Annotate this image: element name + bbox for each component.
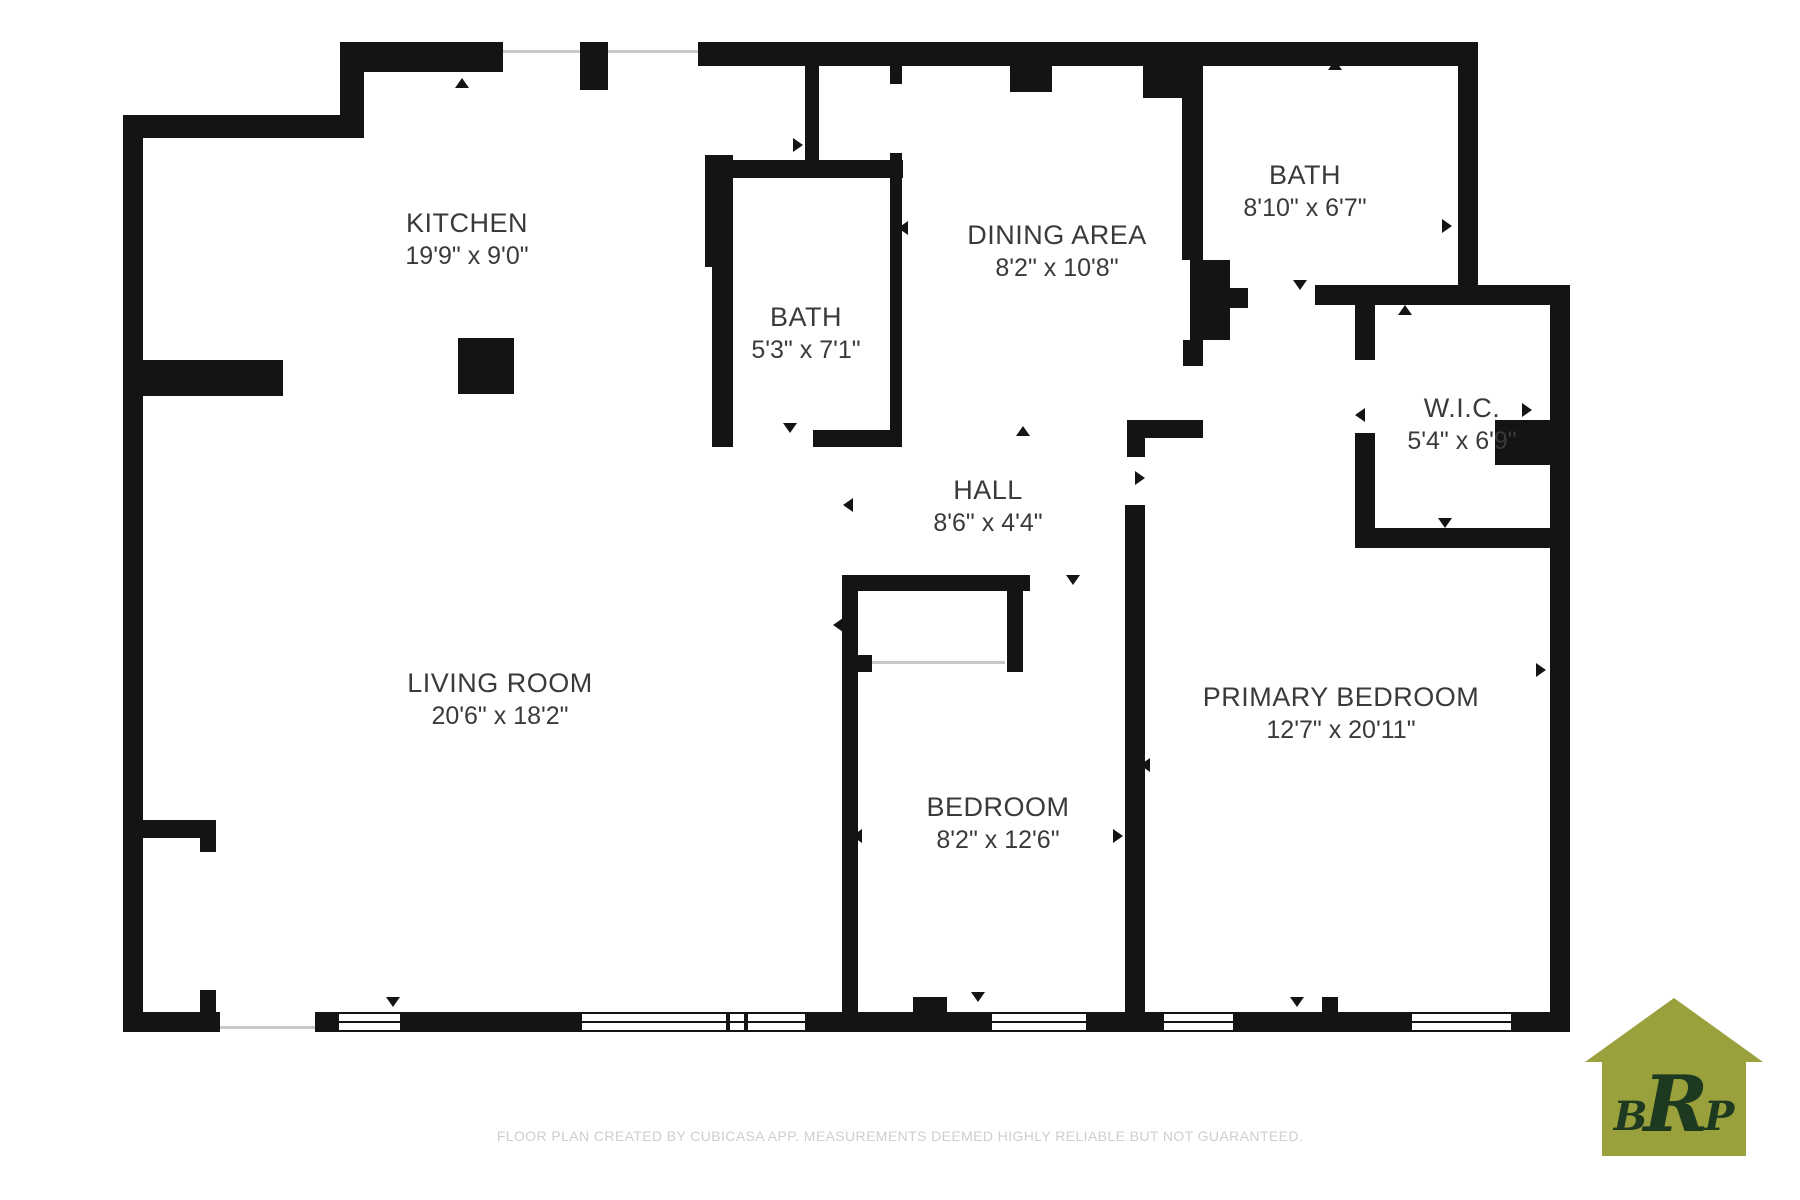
room-dimensions: 8'2" x 12'6" — [926, 824, 1069, 857]
room-dimensions: 8'10" x 6'7" — [1243, 192, 1366, 225]
opening-line — [608, 50, 698, 53]
logo-letter-r: R — [1643, 1059, 1708, 1150]
wall-segment — [807, 1012, 990, 1032]
closet-wall — [858, 655, 872, 672]
door-marker — [843, 498, 853, 512]
door-marker — [1293, 280, 1307, 290]
room-name: BATH — [751, 301, 860, 334]
room-dimensions: 5'3" x 7'1" — [751, 334, 860, 367]
wall-segment — [698, 42, 1478, 66]
closet-wall — [1007, 591, 1023, 672]
door-marker — [1066, 575, 1080, 585]
door-marker — [1398, 305, 1412, 315]
room-label-hall: HALL 8'6" x 4'4" — [933, 474, 1042, 540]
closet-door-line — [862, 661, 1005, 664]
room-label-bath-small: BATH 5'3" x 7'1" — [751, 301, 860, 367]
wall-segment — [1315, 285, 1458, 305]
room-dimensions: 19'9" x 9'0" — [405, 240, 528, 273]
wall-segment — [580, 42, 608, 90]
door-marker — [1355, 408, 1365, 422]
floor-plan: KITCHEN 19'9" x 9'0" BATH 5'3" x 7'1" DI… — [0, 0, 1800, 1200]
wall-segment — [1088, 1012, 1162, 1032]
room-dimensions: 5'4" x 6'9" — [1407, 425, 1516, 458]
house-roof-icon — [1585, 998, 1763, 1062]
room-dimensions: 20'6" x 18'2" — [407, 700, 593, 733]
door-marker — [852, 829, 862, 843]
door-marker — [783, 423, 797, 433]
wall-segment — [842, 575, 1030, 591]
wall-segment — [890, 66, 902, 84]
door-marker — [1290, 997, 1304, 1007]
opening-line — [503, 50, 580, 53]
room-name: HALL — [933, 474, 1042, 507]
door-marker — [386, 997, 400, 1007]
door-marker — [971, 992, 985, 1002]
room-name: KITCHEN — [405, 207, 528, 240]
door-marker — [898, 221, 908, 235]
wall-segment — [200, 820, 216, 852]
kitchen-counter-wall — [123, 360, 283, 396]
room-label-primary-bedroom: PRIMARY BEDROOM 12'7" x 20'11" — [1203, 681, 1480, 747]
door-marker — [1522, 403, 1532, 417]
wall-segment — [340, 42, 503, 72]
room-name: BEDROOM — [926, 791, 1069, 824]
room-name: DINING AREA — [967, 219, 1147, 252]
wall-segment — [1458, 42, 1478, 305]
door-marker — [833, 618, 843, 632]
room-label-kitchen: KITCHEN 19'9" x 9'0" — [405, 207, 528, 273]
wall-segment — [123, 115, 143, 1032]
wall-segment — [712, 267, 733, 447]
wall-segment — [1322, 997, 1338, 1012]
room-label-bedroom: BEDROOM 8'2" x 12'6" — [926, 791, 1069, 857]
room-dimensions: 12'7" x 20'11" — [1203, 714, 1480, 747]
window — [746, 1012, 807, 1032]
wall-segment — [1182, 42, 1203, 260]
door-marker — [793, 138, 803, 152]
brp-logo: B R P — [1585, 998, 1763, 1158]
wall-segment — [1355, 305, 1375, 360]
wall-segment — [813, 430, 902, 447]
wall-segment — [1513, 1012, 1570, 1032]
door-marker — [1016, 426, 1030, 436]
door-marker — [455, 78, 469, 88]
door-marker — [1140, 758, 1150, 772]
wall-segment — [1127, 420, 1145, 457]
opening-line — [220, 1026, 315, 1029]
wall-segment — [123, 115, 364, 138]
wall-segment — [1230, 288, 1248, 308]
room-label-wic: W.I.C. 5'4" x 6'9" — [1407, 392, 1516, 458]
wall-segment — [913, 997, 947, 1012]
window — [990, 1012, 1088, 1032]
door-marker — [128, 140, 138, 154]
wall-segment — [1183, 340, 1203, 366]
door-marker — [1010, 62, 1024, 72]
door-marker — [1442, 219, 1452, 233]
wall-segment — [842, 575, 858, 1012]
room-dimensions: 8'6" x 4'4" — [933, 507, 1042, 540]
door-marker — [1135, 471, 1145, 485]
window-joint — [728, 1012, 746, 1032]
room-name: PRIMARY BEDROOM — [1203, 681, 1480, 714]
door-marker — [128, 538, 138, 552]
window — [337, 1012, 402, 1032]
wall-segment — [315, 1012, 337, 1032]
brp-logo-text: B R P — [1585, 1056, 1763, 1156]
room-name: W.I.C. — [1407, 392, 1516, 425]
door-marker — [1113, 829, 1123, 843]
window — [580, 1012, 728, 1032]
kitchen-island — [458, 338, 514, 394]
door-marker — [1438, 518, 1452, 528]
wall-segment — [402, 1012, 580, 1032]
wall-segment — [1355, 528, 1550, 548]
window — [1410, 1012, 1513, 1032]
room-label-bath-large: BATH 8'10" x 6'7" — [1243, 159, 1366, 225]
wall-segment — [1235, 1012, 1410, 1032]
window — [1162, 1012, 1235, 1032]
room-name: LIVING ROOM — [407, 667, 593, 700]
wall-segment — [1143, 42, 1183, 98]
wall-segment — [1190, 260, 1230, 340]
wall-segment — [890, 153, 902, 447]
door-marker — [1536, 663, 1546, 677]
room-name: BATH — [1243, 159, 1366, 192]
wall-segment — [1550, 285, 1570, 1032]
wall-segment — [705, 155, 733, 267]
disclaimer-text: FLOOR PLAN CREATED BY CUBICASA APP. MEAS… — [480, 1128, 1320, 1144]
room-dimensions: 8'2" x 10'8" — [967, 252, 1147, 285]
room-label-living-room: LIVING ROOM 20'6" x 18'2" — [407, 667, 593, 733]
door-marker — [1328, 60, 1342, 70]
logo-letter-p: P — [1704, 1093, 1734, 1140]
wall-segment — [723, 160, 903, 178]
wall-segment — [200, 990, 216, 1032]
room-label-dining-area: DINING AREA 8'2" x 10'8" — [967, 219, 1147, 285]
